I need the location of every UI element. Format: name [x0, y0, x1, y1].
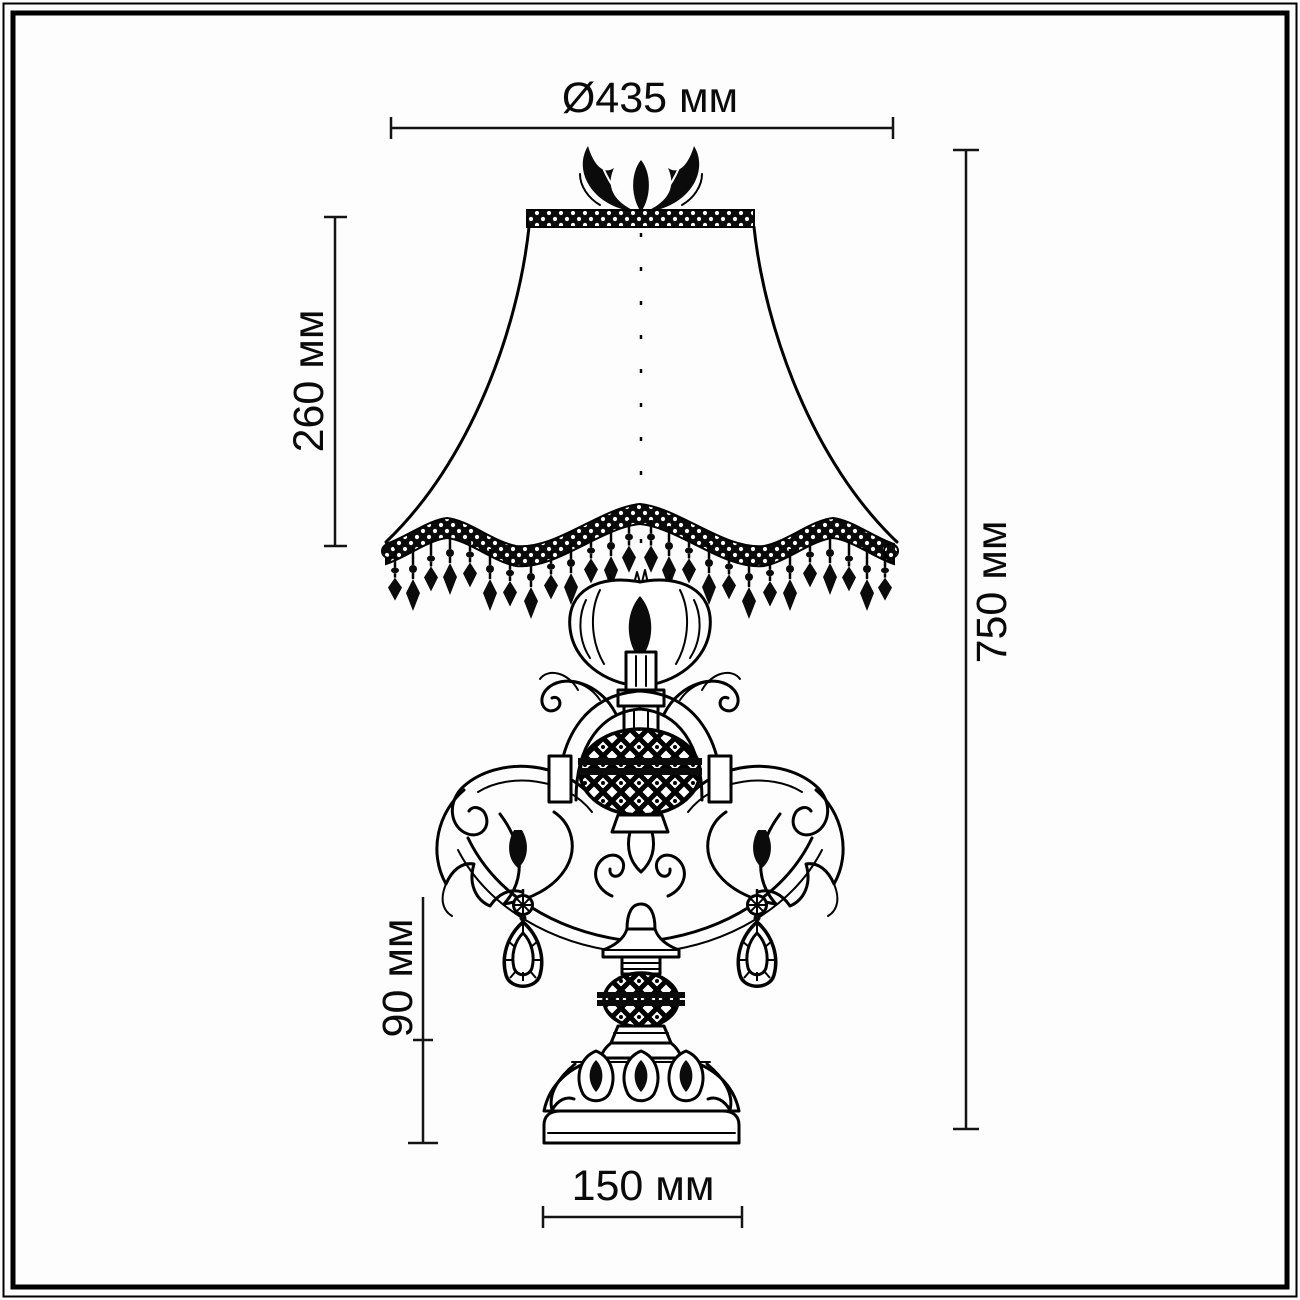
- base-plinth: [544, 1111, 739, 1143]
- dimension-label-shade-height: 260 мм: [285, 310, 333, 453]
- sphere-band: [578, 768, 702, 775]
- fringe-end-rosette-right: [884, 544, 898, 558]
- shade-top-trim: [527, 210, 754, 227]
- sphere-band: [597, 1000, 685, 1006]
- dimension-label-top-diameter: Ø435 мм: [562, 74, 738, 122]
- base-leaf-ornaments: [579, 1051, 703, 1101]
- sphere-band: [597, 992, 685, 998]
- dimension-base-width: 150 мм: [543, 1162, 742, 1228]
- dimension-label-base-width: 150 мм: [572, 1162, 715, 1210]
- dimension-label-total-height: 750 мм: [968, 521, 1016, 664]
- sphere-band: [578, 758, 702, 765]
- dimension-label-base-height: 90 мм: [374, 919, 422, 1038]
- fringe-end-rosette-left: [382, 544, 396, 558]
- lamp-dimension-drawing: Ø435 мм 260 мм 750 мм 90 мм 150 мм: [0, 0, 1300, 1300]
